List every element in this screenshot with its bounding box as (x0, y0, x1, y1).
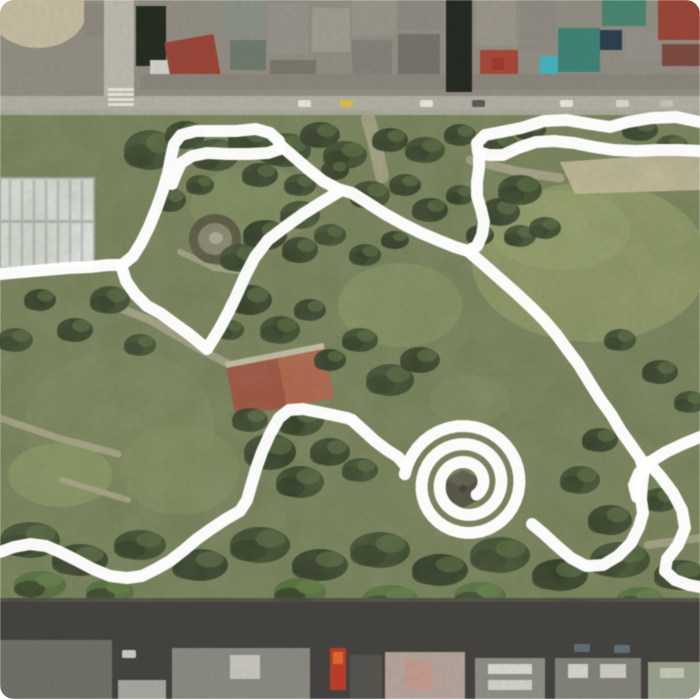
map-scene (0, 0, 700, 699)
map-viewport[interactable] (0, 0, 700, 699)
satellite-imagery (0, 0, 700, 699)
grain-texture (0, 0, 700, 699)
